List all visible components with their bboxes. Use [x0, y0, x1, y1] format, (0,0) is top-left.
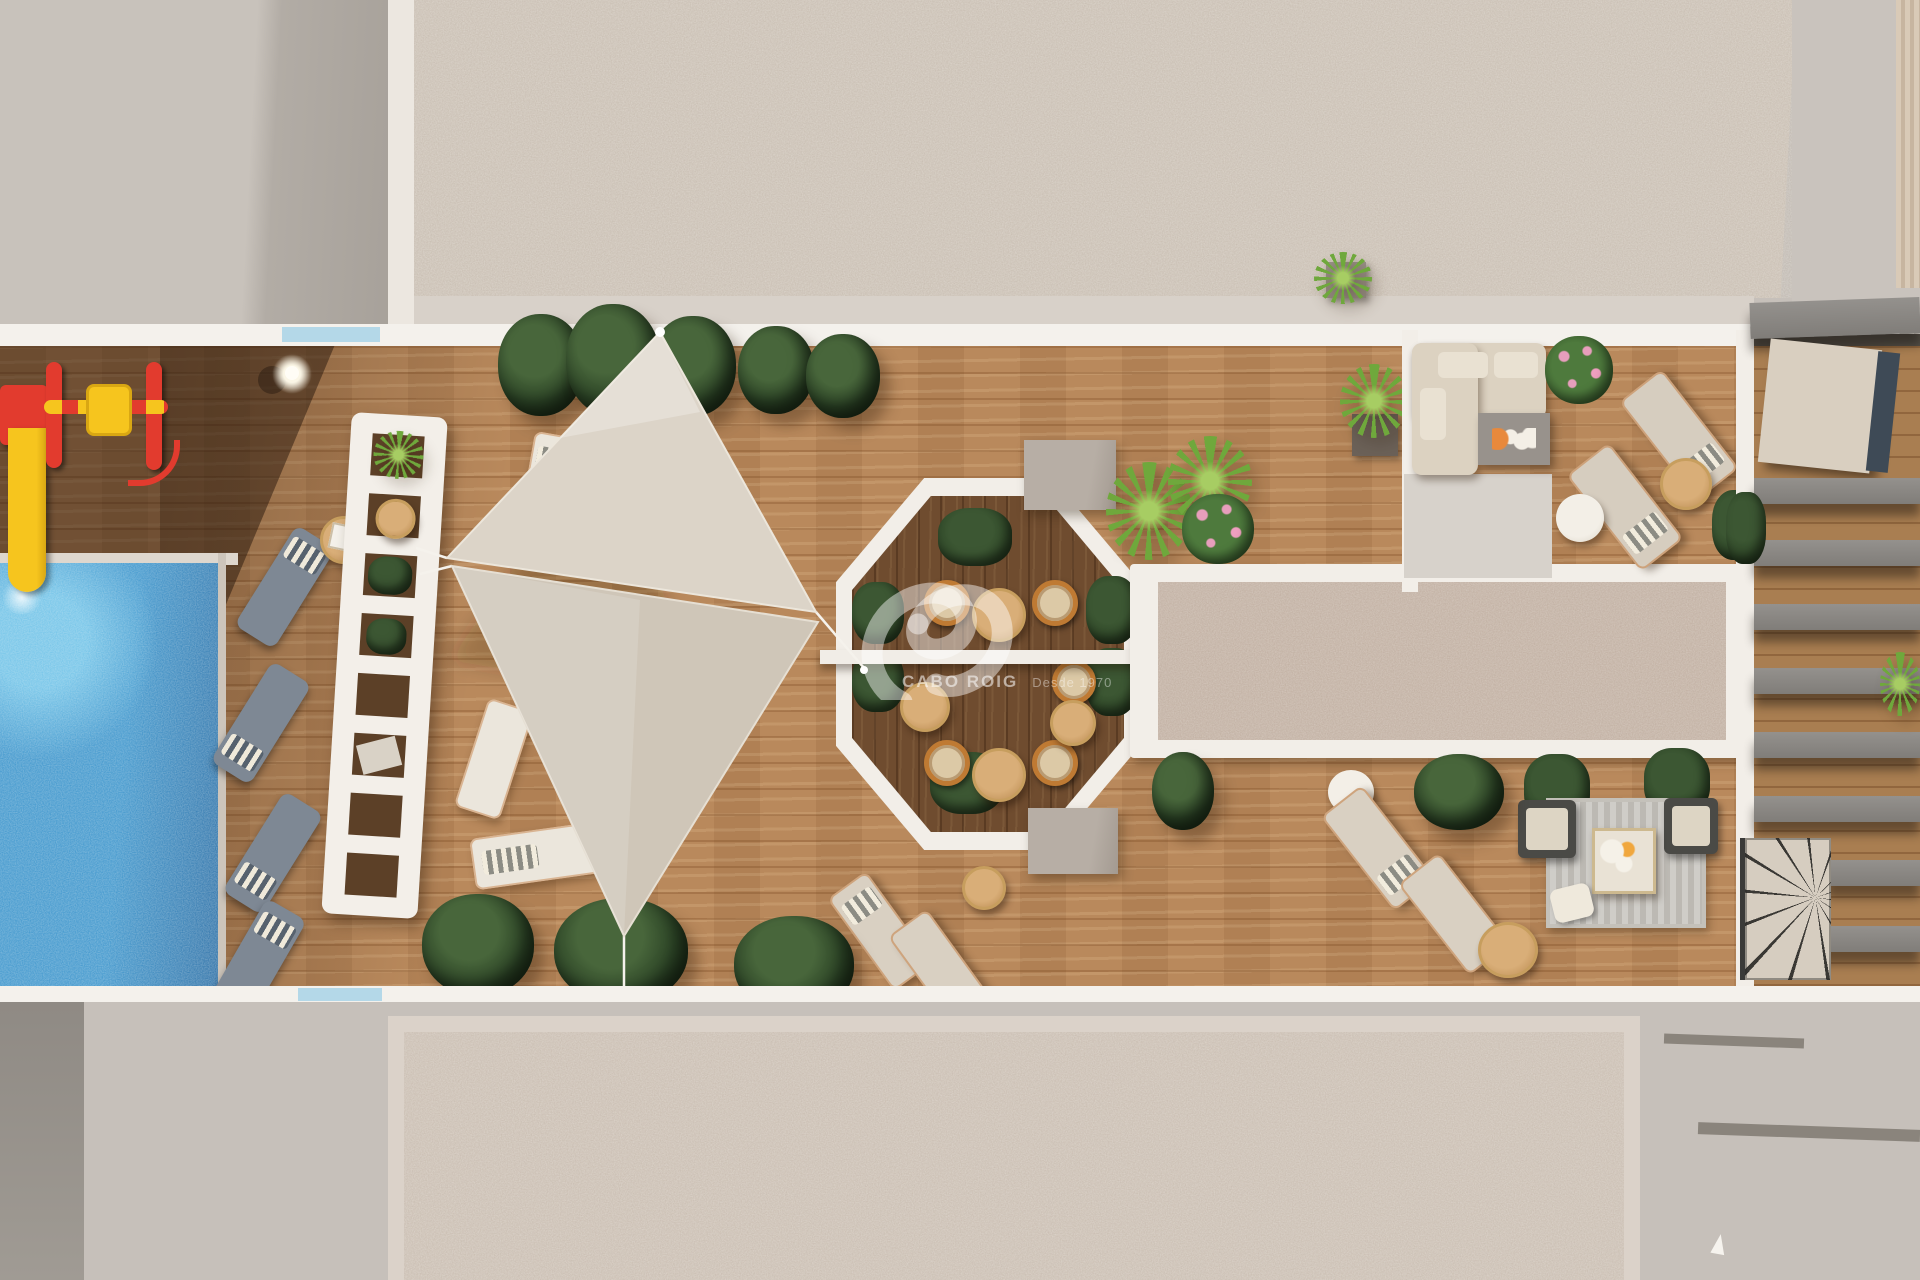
swimming-pool — [0, 563, 218, 993]
octagon-chair-4 — [924, 740, 970, 786]
spinner-wheel-left-icon — [46, 362, 62, 468]
top-left-concrete-roof — [0, 0, 392, 328]
bottom-left-dark-strip — [0, 1002, 84, 1280]
octagon-table-3 — [972, 748, 1026, 802]
rooftop-terrace-render: CABO ROIG Desde 1970 — [0, 0, 1920, 1280]
octagon-table-4 — [1050, 700, 1096, 746]
neighbor-canopy — [1758, 338, 1882, 473]
neighbor-beam-3 — [1754, 604, 1920, 630]
bottom-ficus-a — [1152, 752, 1214, 830]
bottom-ficus-b — [1414, 754, 1504, 830]
lattice-opening-7 — [348, 793, 402, 838]
neighbor-beam-5 — [1754, 732, 1920, 758]
lattice-plant-leaf-1 — [367, 555, 413, 596]
octagon-hedge-top — [938, 508, 1012, 566]
sofa-cushion-1 — [1438, 352, 1488, 378]
sofa-cushion-3 — [1420, 388, 1446, 440]
watermark-tagline: Desde 1970 — [1032, 675, 1112, 690]
watermark: CABO ROIG Desde 1970 — [860, 570, 1140, 700]
bottom-side-table — [962, 866, 1006, 910]
spiral-staircase — [1740, 838, 1831, 980]
bottom-gravel-roof — [404, 1032, 1624, 1280]
top-right-neighbor-deck-strip — [1896, 0, 1920, 288]
lounge-round-table — [1660, 458, 1712, 510]
armchair-left — [1518, 800, 1576, 858]
watermark-brand: CABO ROIG — [902, 672, 1018, 692]
roof-palm-icon — [1314, 252, 1372, 304]
glass-railing-bottom — [298, 988, 382, 1001]
neighbor-bush-1 — [1726, 492, 1766, 564]
armchair-right — [1664, 798, 1718, 854]
ficus-top-3 — [650, 316, 736, 416]
flower-bush-lounge — [1545, 336, 1613, 404]
neighbor-beam-2 — [1754, 540, 1920, 566]
lounge-tray-table — [1556, 494, 1604, 542]
lattice-plant-leaf-2 — [365, 617, 407, 655]
bottom-round-table — [1478, 922, 1538, 978]
neighbor-pergola-top-beam — [1749, 297, 1920, 339]
coffee-table-cups — [1492, 428, 1536, 450]
top-gravel-roof — [414, 0, 1810, 298]
gravel-bed — [1158, 582, 1726, 740]
access-pad-bottom — [1028, 808, 1118, 874]
ficus-top-5 — [806, 334, 880, 418]
spinner-drum — [86, 384, 132, 436]
octagon-chair-5 — [1032, 740, 1078, 786]
slide-chute — [8, 428, 46, 592]
lamp-icon — [285, 366, 299, 380]
ficus-top-4 — [738, 326, 814, 414]
ficus-top-2 — [566, 304, 660, 416]
neighbor-beam-7 — [1826, 860, 1920, 886]
lattice-opening-8 — [345, 853, 399, 898]
neighbor-beam-1 — [1754, 478, 1920, 504]
terrace-bottom-border — [0, 986, 1920, 1002]
access-pad-top — [1024, 440, 1116, 510]
lattice-opening-5 — [356, 673, 410, 718]
neighbor-beam-6 — [1754, 796, 1920, 822]
fire-lounge-breakfast-tray — [1600, 838, 1640, 876]
ficus-bottom-1 — [422, 894, 534, 996]
top-left-parapet-wall — [388, 0, 414, 328]
neighbor-bush-2 — [1880, 652, 1920, 716]
lounge-floor-patch — [1404, 474, 1552, 578]
yucca-deck-3 — [1340, 364, 1408, 438]
flower-bush-deck — [1182, 494, 1254, 564]
glass-railing-top — [282, 327, 380, 342]
pool-coping-right — [218, 553, 226, 993]
sofa-cushion-2 — [1494, 352, 1538, 378]
